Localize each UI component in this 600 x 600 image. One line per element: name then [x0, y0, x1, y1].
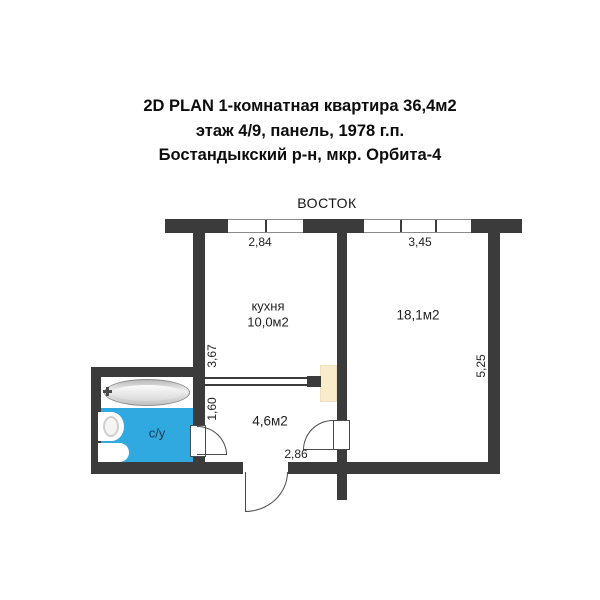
closet-block — [320, 365, 337, 402]
wall-middle-stub — [337, 472, 347, 500]
wall-bottom-left — [91, 462, 243, 474]
kitchen-hall-partition — [205, 377, 320, 386]
bathroom-label: с/у — [149, 426, 166, 441]
kitchen-area: 10,0м2 — [247, 315, 288, 330]
window-mullion — [265, 220, 267, 232]
faucet-icon — [106, 387, 109, 396]
dim-kitchen-depth: 3,67 — [205, 344, 219, 367]
wall-kitchen-left — [193, 233, 205, 425]
floor-plan-page: 2D PLAN 1-комнатная квартира 36,4м2 этаж… — [0, 0, 600, 600]
kitchen-window — [228, 219, 303, 233]
dim-hall-depth: 1,60 — [205, 397, 219, 420]
sink-icon — [98, 412, 124, 441]
kitchen-name: кухня — [251, 299, 284, 314]
toilet-icon — [98, 443, 129, 462]
entry-door-arc — [245, 472, 288, 512]
bathtub-icon — [104, 379, 190, 406]
wall-bathroom-top — [91, 367, 193, 377]
room-door-leaf — [333, 420, 350, 450]
dim-kitchen-width: 2,84 — [248, 235, 271, 249]
wall-middle-upper — [337, 233, 347, 420]
bathtub-area — [101, 377, 193, 408]
wall-top-right — [471, 219, 522, 233]
wall-top-middle — [303, 219, 364, 233]
window-mullion — [435, 220, 437, 232]
bathroom-door-arc — [197, 426, 227, 455]
orientation-label: ВОСТОК — [297, 195, 356, 211]
wall-bottom-right — [288, 462, 500, 474]
title-line-1: 2D PLAN 1-комнатная квартира 36,4м2 — [0, 94, 600, 119]
wall-right — [488, 233, 500, 462]
living-room-area: 18,1м2 — [396, 308, 439, 323]
dim-living-depth: 5,25 — [474, 354, 488, 377]
listing-title: 2D PLAN 1-комнатная квартира 36,4м2 этаж… — [0, 94, 600, 168]
dim-hall-width: 2,86 — [284, 447, 307, 461]
window-mullion — [400, 220, 402, 232]
sink-bowl — [103, 416, 119, 437]
living-window — [364, 219, 471, 233]
partition-end-cap — [307, 376, 321, 387]
room-door-arc — [303, 420, 333, 450]
bathtub-basin — [112, 385, 182, 401]
wall-middle-lower — [337, 450, 347, 462]
dim-living-width: 3,45 — [408, 235, 431, 249]
title-line-3: Бостандыкский р-н, мкр. Орбита-4 — [0, 143, 600, 168]
hall-area: 4,6м2 — [252, 414, 288, 429]
wall-top-left — [165, 219, 228, 233]
title-line-2: этаж 4/9, панель, 1978 г.п. — [0, 119, 600, 144]
